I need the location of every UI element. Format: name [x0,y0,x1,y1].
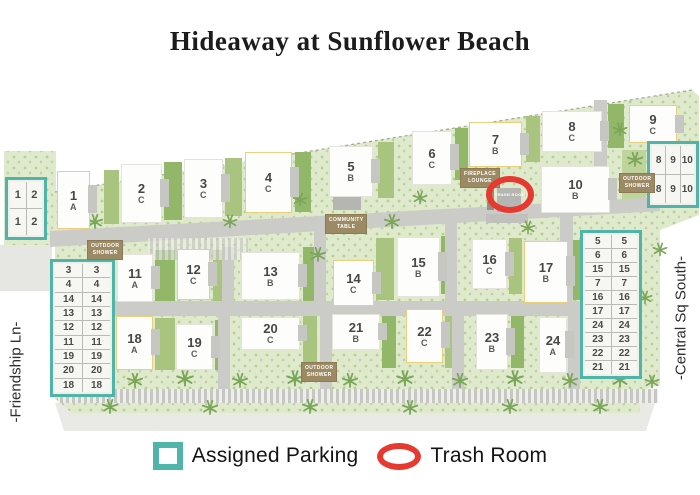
building-13B: 13B [241,252,300,300]
parking-cell: 24 [585,319,611,332]
trash-room-swatch [377,443,421,470]
building-number: 21 [349,321,363,334]
building-unit: B [492,147,499,156]
building-18A: 18A [116,316,153,370]
outdoor-shower-right-label: OUTDOORSHOWER [619,173,655,193]
assigned-parking-swatch [153,442,183,470]
parking-cell: 7 [585,277,611,290]
parking-cell: 13 [55,307,82,320]
building-number: 11 [128,267,142,280]
building-unit: B [543,275,550,284]
outdoor-shower-bottom-label: OUTDOORSHOWER [301,362,337,382]
building-number: 24 [546,334,560,347]
building-unit: A [70,203,77,212]
parking-cell: 16 [585,291,611,304]
parking-cell: 5 [612,235,638,248]
legend-trash-label: Trash Room [430,444,547,468]
building-1A: 1A [57,171,90,229]
building-number: 2 [138,182,145,195]
parking-cell: 14 [83,293,110,306]
parking-cell: 2 [27,182,43,208]
parking-cell: 24 [612,319,638,332]
parking-cell: 18 [55,379,82,392]
building-number: 12 [186,263,200,276]
boardwalk [58,389,658,403]
building-unit: C [569,134,576,143]
building-8C: 8C [542,111,602,152]
building-unit: C [429,161,436,170]
building-3C: 3C [184,159,223,218]
parking-cell: 16 [612,291,638,304]
building-10B: 10B [541,166,610,213]
parking-cell: 6 [585,249,611,262]
building-number: 5 [347,160,354,173]
building-unit: C [421,339,428,348]
parking-cell: 14 [55,293,82,306]
parking-cell: 4 [83,278,110,291]
parking-cell: 22 [612,347,638,360]
amenity-label-line: OUTDOOR [305,365,333,372]
building-number: 6 [428,147,435,160]
building-number: 15 [411,256,425,269]
parking-cell: 17 [585,305,611,318]
building-unit: C [138,196,145,205]
building-unit: C [200,191,207,200]
building-15B: 15B [397,237,440,297]
building-number: 14 [346,272,360,285]
building-unit: A [550,348,557,357]
building-22C: 22C [406,309,443,363]
building-unit: B [353,335,360,344]
community-table-label: COMMUNITYTABLE [325,214,367,234]
amenity-label-line: FIREPLACE [464,171,496,178]
building-unit: A [132,281,139,290]
building-number: 8 [568,120,575,133]
building-14C: 14C [333,260,374,306]
building-unit: B [415,270,422,279]
amenity-label-line: SHOWER [623,183,651,190]
building-unit: B [489,345,496,354]
building-2C: 2C [121,164,162,223]
parking-cell: 13 [83,307,110,320]
building-unit: C [265,185,272,194]
parking-cell: 6 [612,249,638,262]
parking-cell: 10 [681,146,694,174]
legend: Assigned Parking Trash Room [0,442,700,470]
legend-parking-label: Assigned Parking [192,444,359,468]
building-number: 23 [485,331,499,344]
parking-cell: 12 [83,321,110,334]
parking-cell: 17 [612,305,638,318]
building-unit: C [190,277,197,286]
site-plan-page: Hideaway at Sunflower Beach -Friendship … [0,0,700,495]
parking-cell: 11 [83,336,110,349]
building-number: 19 [187,336,201,349]
building-number: 20 [263,322,277,335]
building-number: 18 [127,332,141,345]
building-12C: 12C [177,249,210,300]
parking-cell: 9 [666,146,679,174]
parking-cell: 23 [612,333,638,346]
building-7B: 7B [469,122,522,167]
building-9C: 9C [629,105,677,143]
building-number: 9 [649,113,656,126]
amenity-label-line: OUTDOOR [623,176,651,183]
parking-cell: 8 [652,146,665,174]
building-number: 4 [265,171,272,184]
parking-cell: 1 [10,182,26,208]
building-unit: C [350,286,357,295]
parking-cell: 1 [10,209,26,235]
parking-cell: 11 [55,336,82,349]
outdoor-shower-left-label: OUTDOORSHOWER [87,240,123,260]
amenity-label-line: SHOWER [305,372,333,379]
parking-table-left: 33441414131312121111191920201818 [50,259,115,397]
parking-cell: 19 [83,350,110,363]
trash-room-label: TRASH ROOM [495,192,525,197]
building-16C: 16C [472,239,507,289]
amenity-label-line: SHOWER [91,250,119,257]
parking-cell: 15 [585,263,611,276]
parking-cell: 4 [55,278,82,291]
building-unit: B [267,279,274,288]
parking-cell: 9 [666,175,679,203]
building-6C: 6C [412,131,452,185]
amenity-label-line: COMMUNITY [329,217,363,224]
building-5B: 5B [329,146,373,197]
building-unit: C [650,127,657,136]
parking-cell: 20 [55,364,82,377]
building-unit: B [348,174,355,183]
parking-cell: 10 [681,175,694,203]
building-unit: C [486,267,493,276]
building-21B: 21B [332,314,380,350]
parking-cell: 22 [585,347,611,360]
building-number: 7 [492,133,499,146]
building-24A: 24A [539,317,567,373]
building-19C: 19C [176,324,213,370]
building-unit: C [191,350,198,359]
building-number: 16 [482,253,496,266]
building-unit: A [131,346,138,355]
parking-cell: 2 [27,209,43,235]
amenity-label-line: TABLE [329,224,363,231]
parking-cell: 21 [585,361,611,374]
building-20C: 20C [241,317,300,350]
building-4C: 4C [245,152,292,213]
parking-table-top-left: 1212 [5,177,47,240]
parking-cell: 20 [83,364,110,377]
parking-cell: 3 [83,264,110,277]
building-23B: 23B [476,314,508,370]
parking-cell: 15 [612,263,638,276]
parking-cell: 23 [585,333,611,346]
trash-room-marker: TRASH ROOM [486,176,534,213]
building-unit: C [267,336,274,345]
building-11A: 11A [117,254,153,302]
building-number: 1 [70,189,77,202]
parking-cell: 12 [55,321,82,334]
parking-cell: 19 [55,350,82,363]
parking-cell: 3 [55,264,82,277]
amenity-label-line: OUTDOOR [91,243,119,250]
building-17B: 17B [524,241,568,303]
building-number: 22 [417,325,431,338]
parking-cell: 18 [83,379,110,392]
building-number: 13 [263,265,277,278]
parking-cell: 21 [612,361,638,374]
parking-table-right: 5566151577161617172424232322222121 [580,230,642,379]
building-number: 10 [568,178,582,191]
building-unit: B [572,192,579,201]
building-number: 17 [539,261,553,274]
site-map: 1A2C3C4C5B6C7B8C9C10B11A12C13B14C15B16C1… [0,0,700,495]
parking-cell: 5 [585,235,611,248]
building-number: 3 [200,177,207,190]
parking-cell: 7 [612,277,638,290]
